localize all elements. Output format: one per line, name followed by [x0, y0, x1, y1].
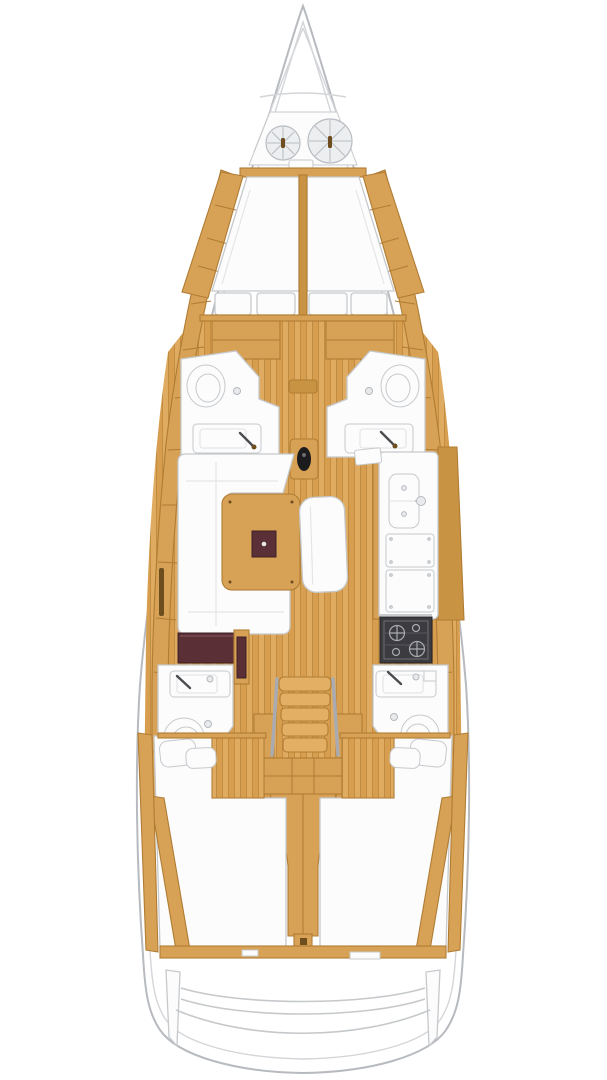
cabinet-face	[438, 447, 464, 620]
toilet	[187, 365, 225, 407]
saloon-table	[222, 494, 300, 590]
door-sill	[158, 733, 266, 738]
washbasin	[193, 424, 261, 453]
aft-cabin-starboard	[320, 733, 468, 952]
floor-drain	[205, 721, 212, 728]
rope-coil-starboard	[308, 119, 352, 163]
beam-notch	[242, 950, 258, 956]
stove-oven	[380, 615, 432, 663]
locker-door	[354, 448, 381, 466]
mast-step-threshold	[289, 380, 317, 393]
locker-panel-upper	[386, 534, 434, 567]
floor-drain	[391, 714, 398, 721]
foot-cushion	[257, 293, 295, 315]
mast-post	[290, 439, 318, 479]
rope-coil-port	[266, 126, 300, 160]
bench-seat	[299, 496, 348, 593]
foot-cushion	[309, 293, 347, 315]
cabin-threshold	[200, 315, 406, 321]
boat-floor-plan	[0, 0, 607, 1080]
door-sill	[340, 733, 450, 738]
aft-cabin-port	[138, 733, 286, 952]
toilet	[381, 365, 419, 407]
chart-table	[234, 630, 249, 684]
beam-notch	[350, 952, 380, 959]
washbasin	[376, 671, 436, 697]
faucet	[417, 497, 426, 506]
engine-compartment	[264, 758, 342, 794]
locker-panel-lower	[386, 570, 434, 612]
side-slot-port	[159, 568, 164, 616]
boat-floor-plan-svg	[0, 0, 607, 1080]
washbasin	[170, 671, 230, 697]
floor-drain	[366, 388, 373, 395]
shelf-box	[424, 671, 436, 681]
wood-floor	[212, 736, 264, 798]
berth-center-divider	[299, 175, 307, 315]
foot-cushion	[215, 293, 251, 315]
aft-bulkhead-beam	[160, 946, 446, 958]
stairs	[279, 677, 331, 752]
anchor-locker	[249, 112, 357, 171]
floor-drain	[234, 388, 241, 395]
nav-seat	[178, 633, 235, 663]
foot-cushion	[351, 293, 387, 315]
wood-floor	[342, 736, 394, 798]
